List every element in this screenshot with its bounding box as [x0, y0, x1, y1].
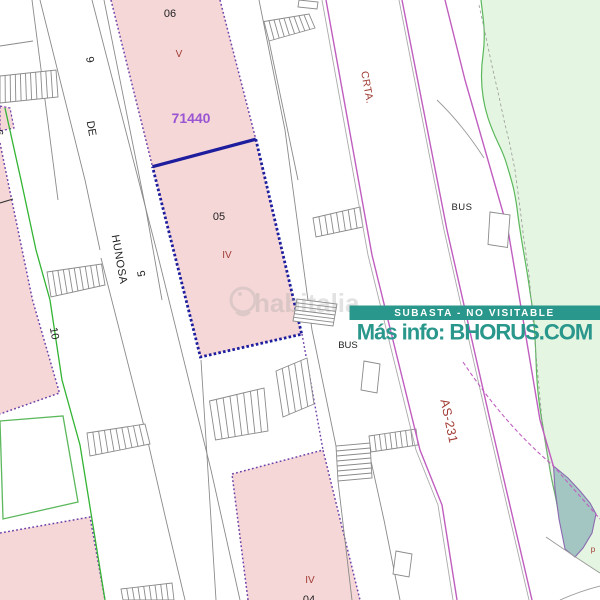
svg-text:04: 04: [303, 594, 315, 600]
svg-text:IV: IV: [222, 250, 232, 261]
svg-text:9: 9: [0, 128, 6, 136]
svg-text:SUBASTA - NO VISITABLE: SUBASTA - NO VISITABLE: [394, 308, 555, 319]
svg-text:Más info: BHORUS.COM: Más info: BHORUS.COM: [357, 320, 592, 345]
svg-text:06: 06: [164, 8, 176, 20]
svg-text:71440: 71440: [172, 110, 211, 126]
svg-text:p: p: [591, 545, 596, 554]
svg-text:habitalia: habitalia: [254, 288, 360, 318]
svg-text:10: 10: [47, 326, 61, 340]
svg-text:BUS: BUS: [338, 340, 358, 351]
svg-text:IV: IV: [305, 575, 315, 586]
svg-text:BUS: BUS: [451, 202, 472, 213]
svg-text:05: 05: [213, 211, 225, 223]
svg-text:V: V: [176, 49, 183, 60]
